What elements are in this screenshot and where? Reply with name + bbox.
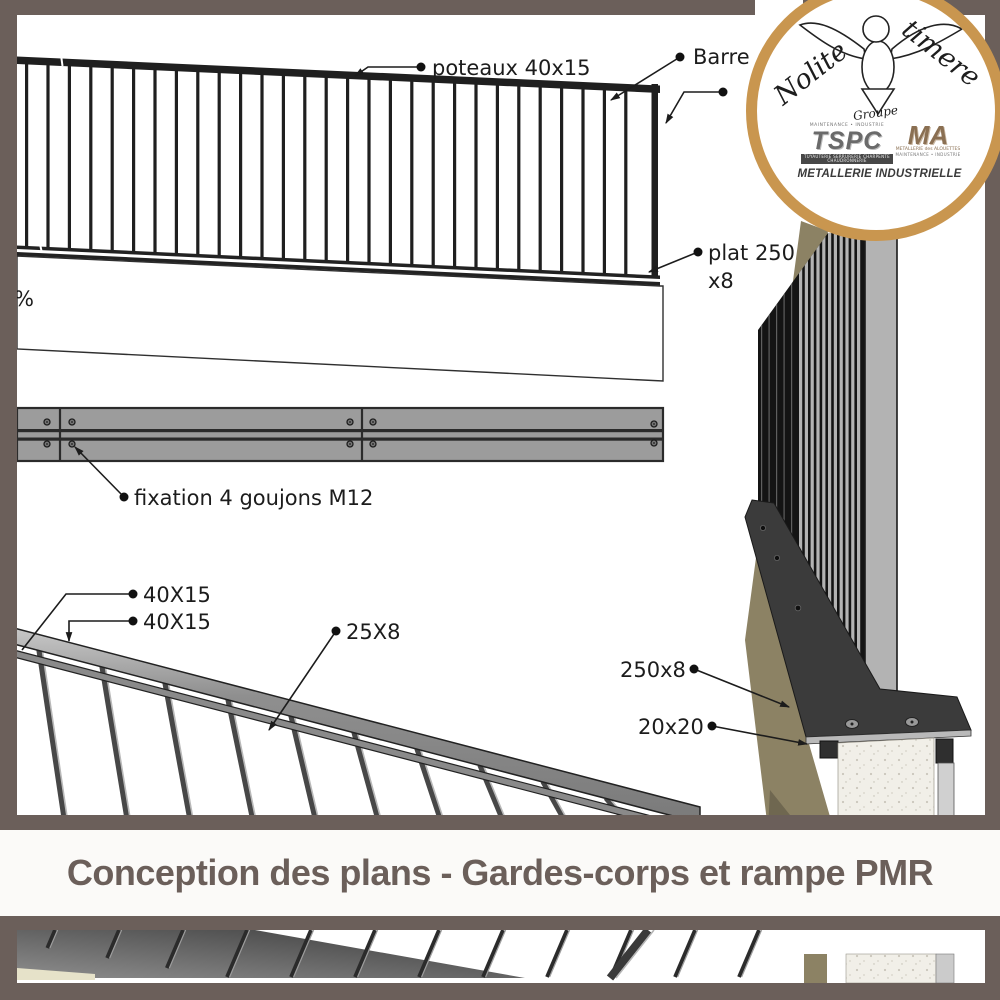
title-band: Conception des plans - Gardes-corps et r… [0,830,1000,916]
tspc-logo: MAINTENANCE • INDUSTRIE TSPC TUYAUTERIE … [801,124,893,164]
ramp-deck-underside [17,930,525,978]
divider-bar-top [0,815,1000,830]
label-plat-2: x8 [708,269,734,293]
label-plat-1: plat 250 [708,241,795,265]
fascia-panel [17,256,663,381]
frame-left-strip [0,930,17,983]
ramp-handrail [10,627,700,830]
groove-line [17,438,663,441]
guardrail-elevation: % [14,55,663,381]
ramp-sub-rail [10,649,682,830]
leader-lines [22,53,807,745]
plate-bolt [760,525,765,530]
label-poteaux: poteaux 40x15 [432,56,590,80]
annotation-labels: poteaux 40x15 Barre plat 250 x8 fixation… [134,45,795,739]
end-post [652,84,659,278]
label-plate: 250x8 [620,658,686,682]
frame-left [0,0,17,815]
label-subrail: 25X8 [346,620,400,644]
plate-bolt [795,605,801,611]
label-barre: Barre [693,45,750,69]
frame-bottom [0,983,1000,1000]
flat-bar-plan [17,408,663,461]
bolt-center [851,723,854,726]
frame-right-strip [985,930,1000,983]
ma-sub2: MAINTENANCE • INDUSTRIE [895,153,961,157]
bolt-center [911,721,914,724]
tspc-name: TSPC [801,129,893,154]
label-fixation: fixation 4 goujons M12 [134,486,373,510]
groove-line [17,429,663,432]
support-wall-bottom [804,954,827,983]
concrete-wall-bottom [846,954,936,983]
flat-bar [17,408,663,461]
label-square-bar: 20x20 [638,715,704,739]
plate-bolt [774,555,779,560]
logo-inner: Nolite timere Groupe MAINTENANCE • INDUS… [757,0,995,230]
label-rail-2: 40X15 [143,610,211,634]
plate-return-bottom [936,954,954,983]
ma-logo: MA METALLERIE des ALOUETTES MAINTENANCE … [895,122,961,157]
label-rail-1: 40X15 [143,583,211,607]
logo-tagline: METALLERIE INDUSTRIELLE [797,168,962,180]
balusters [25,64,627,275]
divider-bar-bottom [0,916,1000,930]
page-title: Conception des plans - Gardes-corps et r… [67,852,933,894]
ma-name: MA [895,122,961,148]
tspc-bottom-text: TUYAUTERIE SERRURERIE CHARPENTE CHAUDRON… [801,154,893,164]
drawing-continuation-strip [0,930,1000,983]
post-40x15 [865,228,897,695]
square-bar-20x20-left [820,741,838,758]
square-bar-20x20-right [936,739,953,763]
